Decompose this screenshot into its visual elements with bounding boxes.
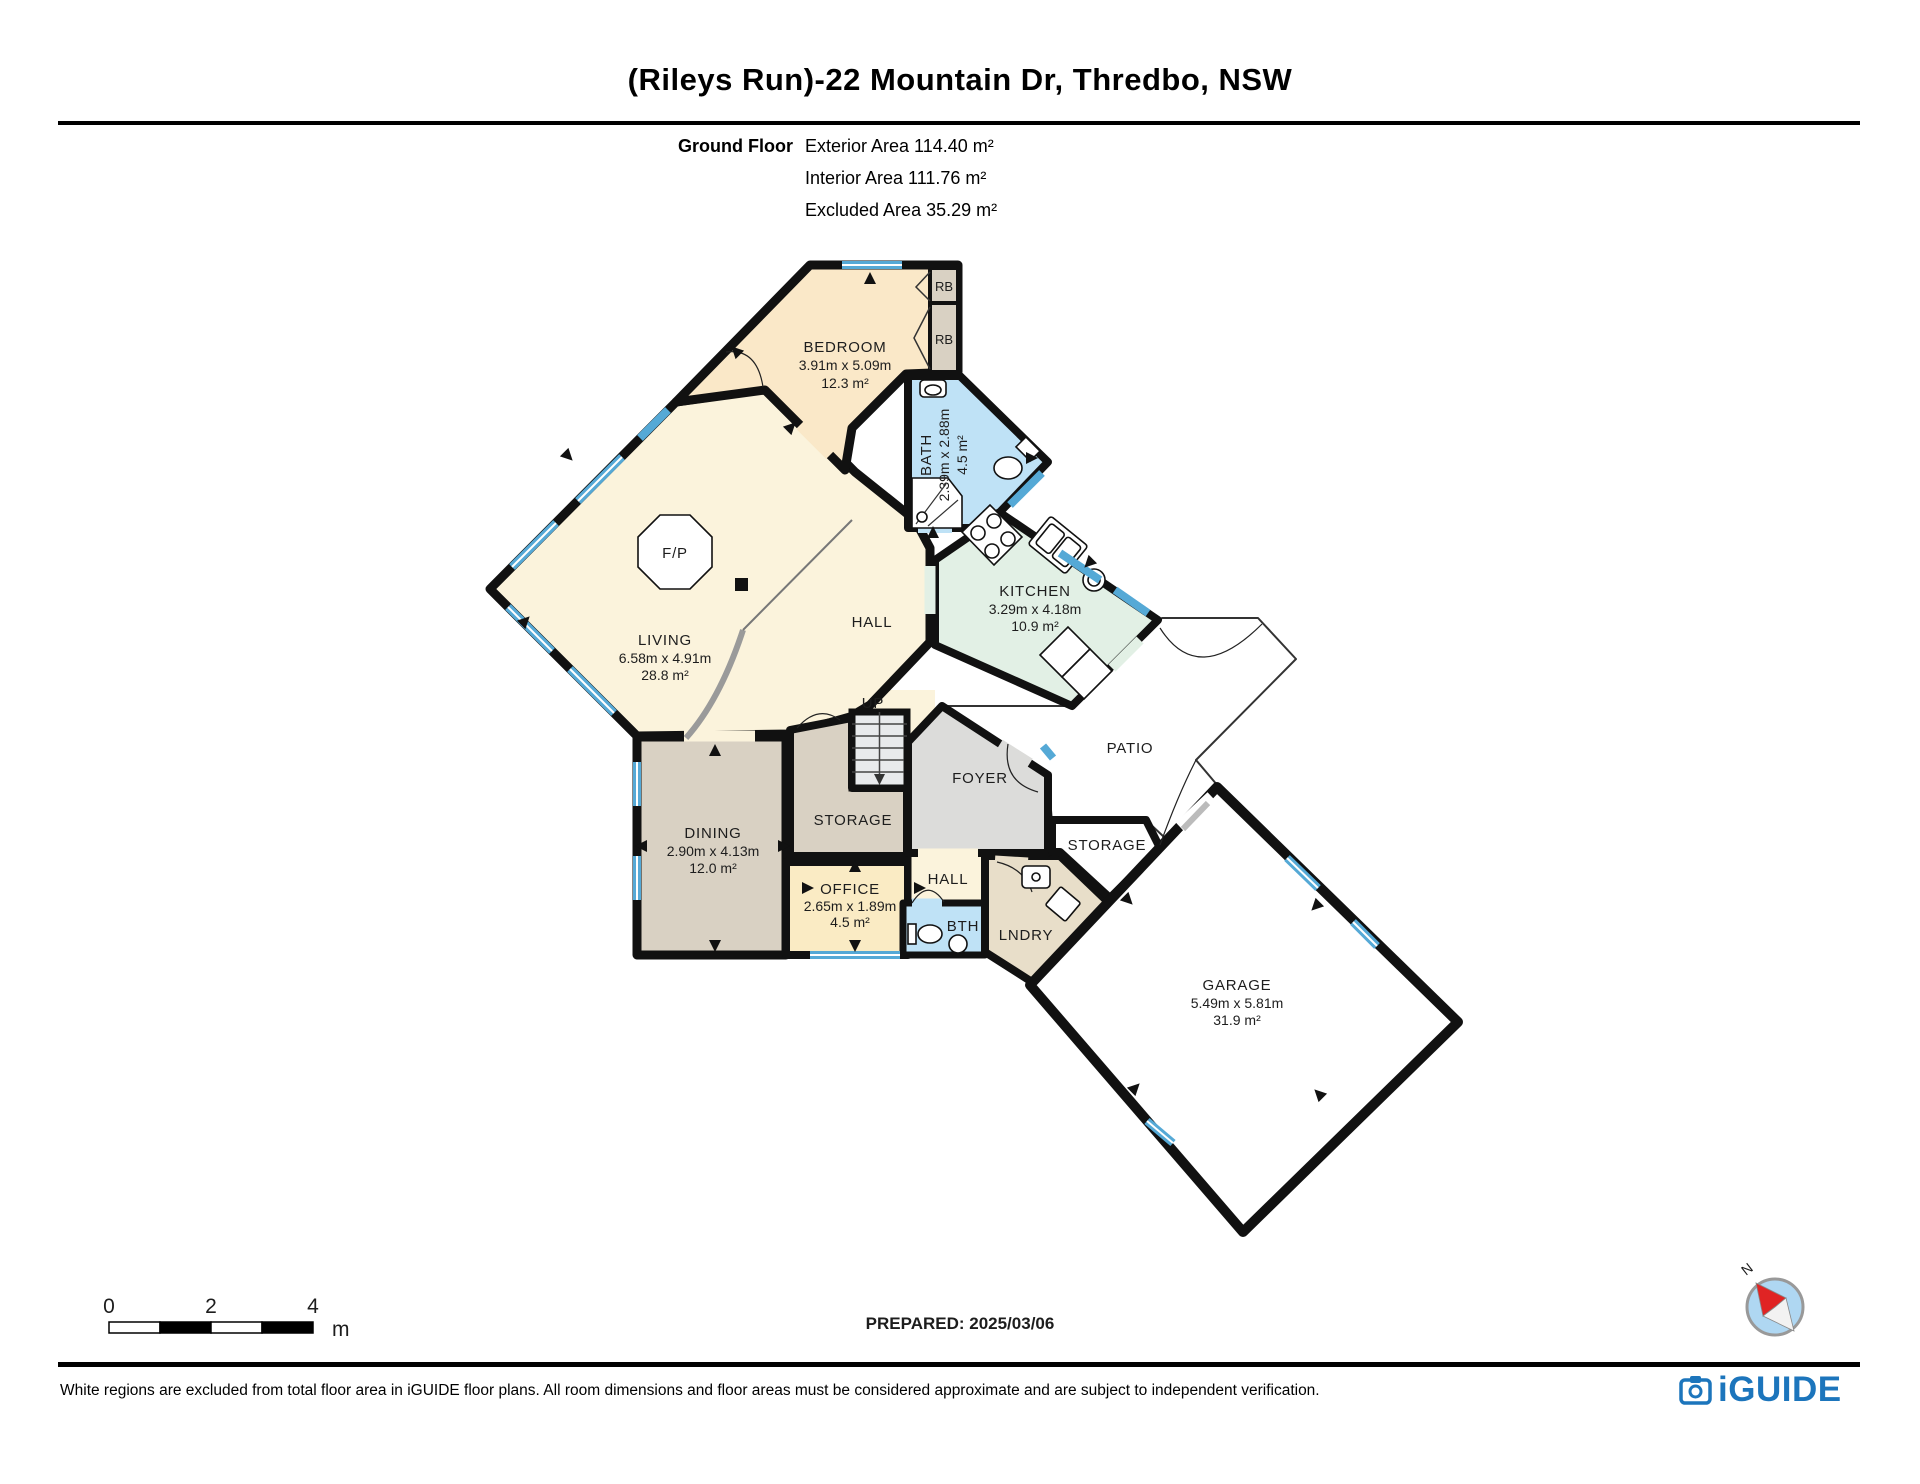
kitchen-area: 10.9 m² [1011, 618, 1059, 634]
bth-toilet-icon [918, 925, 942, 943]
bedroom-area: 12.3 m² [821, 375, 869, 391]
bath-area: 4.5 m² [954, 435, 970, 475]
dining-area: 12.0 m² [689, 860, 737, 876]
lndry-label: LNDRY [999, 927, 1054, 944]
compass-north-label: N [1738, 1260, 1756, 1279]
dining-label: DINING [684, 825, 741, 842]
foyer-label: FOYER [952, 770, 1008, 787]
garage-area: 31.9 m² [1213, 1012, 1261, 1028]
stairs [852, 712, 907, 788]
fireplace-label: F/P [662, 545, 688, 562]
floor-plan-page: (Rileys Run)-22 Mountain Dr, Thredbo, NS… [0, 0, 1920, 1484]
hall-upper-label: HALL [852, 614, 893, 631]
compass-icon: N [1738, 1260, 1803, 1335]
living-dims: 6.58m x 4.91m [619, 650, 712, 666]
toilet-icon [994, 457, 1022, 479]
scale-tick-2: 2 [205, 1295, 217, 1318]
bath-dims: 2.39m x 2.88m [936, 409, 952, 502]
post-icon [735, 578, 748, 591]
bath-label: BATH [918, 434, 935, 476]
prepared-date: PREPARED: 2025/03/06 [866, 1314, 1055, 1333]
scale-tick-4: 4 [307, 1295, 319, 1318]
garage-dims: 5.49m x 5.81m [1191, 995, 1284, 1011]
kitchen-dims: 3.29m x 4.18m [989, 601, 1082, 617]
scale-bar: 0 2 4 m [103, 1295, 349, 1341]
bth-toilet-tank [908, 924, 916, 944]
office-dims: 2.65m x 1.89m [804, 898, 897, 914]
office-area: 4.5 m² [830, 914, 870, 930]
robe1-label: RB [935, 279, 953, 294]
office-label: OFFICE [820, 881, 880, 898]
storage-inner-label: STORAGE [814, 812, 893, 829]
living-area: 28.8 m² [641, 667, 689, 683]
storage-outer-label: STORAGE [1068, 837, 1147, 854]
iguide-brand-text: iGUIDE [1718, 1372, 1842, 1408]
robe2-label: RB [935, 332, 953, 347]
scale-tick-0: 0 [103, 1295, 115, 1318]
hall-lower-label: HALL [928, 871, 969, 888]
patio-label: PATIO [1107, 740, 1154, 757]
iguide-logo: iGUIDE [1678, 1372, 1842, 1408]
footer-divider [58, 1362, 1860, 1367]
living-label: LIVING [638, 632, 692, 649]
floor-plan-drawing: BEDROOM 3.91m x 5.09m 12.3 m² BATH 2.39m… [0, 0, 1920, 1484]
iguide-camera-icon [1678, 1372, 1714, 1408]
dining-dims: 2.90m x 4.13m [667, 843, 760, 859]
scale-unit: m [332, 1318, 350, 1341]
bedroom-label: BEDROOM [803, 339, 886, 356]
bth-label: BTH [947, 918, 979, 935]
bedroom-dims: 3.91m x 5.09m [799, 357, 892, 373]
bth-sink-icon [949, 935, 967, 953]
footer-disclaimer: White regions are excluded from total fl… [60, 1382, 1320, 1400]
garage-label: GARAGE [1203, 977, 1272, 994]
kitchen-label: KITCHEN [999, 583, 1070, 600]
up-label: UP [862, 695, 884, 712]
